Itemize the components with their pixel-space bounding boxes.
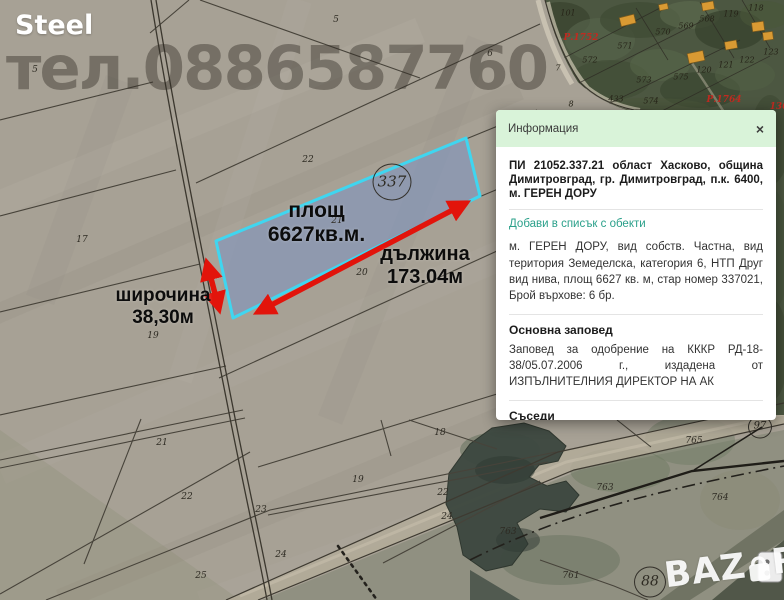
order-heading: Основна заповед [509,323,763,337]
area-measurement: площ 6627кв.м. [234,199,399,248]
neighbors-heading: Съседи [509,409,763,420]
width-value: 38,30м [88,307,238,329]
info-panel-title: Информация [508,123,578,135]
add-to-list-link[interactable]: Добави в списък с обекти [509,218,646,230]
area-label: площ [234,199,399,223]
width-measurement: широчина 38,30м [88,285,238,329]
order-text: Заповед за одобрение на КККР РД-18-38/05… [509,342,763,391]
info-panel-body: ПИ 21052.337.21 област Хасково, община Д… [496,160,776,420]
shopping-bag-icon [746,551,773,584]
parcel-description: м. ГЕРЕН ДОРУ, вид собств. Частна, вид т… [509,239,763,304]
divider [509,400,763,401]
parcel-address: ПИ 21052.337.21 област Хасково, община Д… [509,160,763,201]
length-value: 173.04м [345,266,505,289]
length-measurement: дължина 173.04м [345,243,505,289]
phone-watermark: тел.0886587760 [6,33,547,104]
close-icon[interactable]: × [756,122,764,136]
divider [509,314,763,315]
info-panel: Информация × ПИ 21052.337.21 област Хаск… [496,110,776,420]
map-screenshot: 5562217212019181922232424252122763763765… [0,0,784,600]
info-panel-header: Информация × [496,110,776,147]
seller-watermark: Steel [15,10,93,41]
width-label: широчина [88,285,238,307]
length-label: дължина [345,243,505,266]
divider [509,209,763,210]
